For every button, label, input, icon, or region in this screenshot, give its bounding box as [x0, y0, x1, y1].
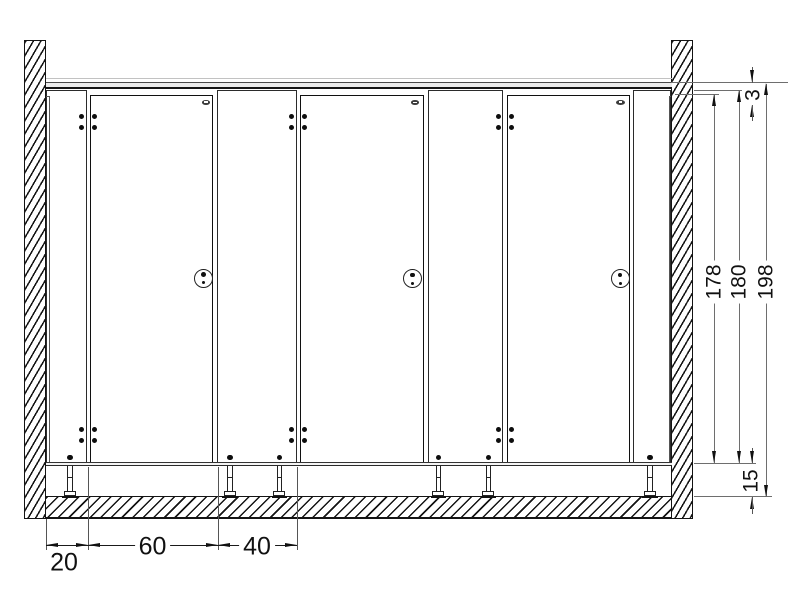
- foot-base: [481, 496, 497, 498]
- dim-label-20: 20: [50, 550, 78, 575]
- wall-panel-4: [633, 90, 671, 463]
- foot-adjuster: [67, 477, 72, 478]
- bottom-rail: [46, 462, 672, 466]
- hinge-icon: [92, 427, 97, 432]
- dim-180-arrow-top: [737, 90, 741, 102]
- foot-adjuster: [436, 477, 441, 478]
- right-wall-channel-tick: [669, 96, 672, 97]
- partition-panel-3: [428, 90, 504, 463]
- foot-bolt-icon: [67, 455, 72, 460]
- dim-label-15: 15: [740, 469, 761, 492]
- lock-dot-icon: [410, 273, 415, 278]
- foot-base: [431, 496, 447, 498]
- hinge-icon: [509, 114, 514, 119]
- foot-pedestal: [436, 466, 441, 491]
- hinge-icon: [92, 438, 97, 443]
- dim-3-shaft-bottom: [752, 105, 753, 121]
- hinge-icon: [79, 438, 84, 443]
- dim-15-shaft-bottom: [752, 497, 753, 514]
- hinge-icon: [79, 125, 84, 130]
- door-cap-slit-icon: [413, 102, 417, 103]
- dim-15-arrow-down: [750, 451, 754, 463]
- foot-bolt-icon: [227, 455, 232, 460]
- dim-178-arrow-top: [712, 94, 716, 106]
- door-lock-icon: [403, 269, 422, 288]
- left-wall-channel-tick: [46, 96, 50, 97]
- dim-label-60: 60: [135, 535, 171, 560]
- foot-base: [642, 496, 658, 498]
- dim-180-arrow-bottom: [737, 451, 741, 463]
- dim-40-arrow-left: [218, 543, 230, 547]
- dim-60-arrow-left: [88, 543, 100, 547]
- door-cap-slit-icon: [619, 101, 623, 102]
- hinge-icon: [302, 438, 307, 443]
- foot-bolt-icon: [647, 455, 652, 460]
- hinge-icon: [289, 114, 294, 119]
- partition-panel-2: [217, 90, 297, 463]
- lock-dot-icon: [619, 282, 622, 285]
- foot-base: [222, 496, 238, 498]
- hinge-icon: [509, 125, 514, 130]
- extension-line-panel-top: [694, 90, 742, 91]
- lock-dot-icon: [411, 282, 414, 285]
- hinge-icon: [289, 125, 294, 130]
- foot-pedestal: [647, 466, 652, 491]
- extension-line-lock-stile: [218, 467, 219, 550]
- wall-panel-1: [46, 90, 87, 463]
- door-cap-slit-icon: [204, 101, 208, 102]
- foot-adjuster: [277, 477, 282, 478]
- hinge-icon: [79, 427, 84, 432]
- dim-3-arrow-down: [750, 70, 754, 82]
- foot-base: [62, 496, 78, 498]
- hinge-icon: [302, 114, 307, 119]
- hinge-icon: [509, 438, 514, 443]
- foot-base: [272, 496, 288, 498]
- extension-line-floor-top: [694, 496, 772, 497]
- lock-dot-icon: [201, 272, 206, 277]
- foot-adjuster: [647, 477, 652, 478]
- dim-20-arrow-right: [76, 543, 88, 547]
- dim-label-198: 198: [756, 260, 777, 303]
- dim-178-arrow-bottom: [712, 451, 716, 463]
- hinge-icon: [92, 114, 97, 119]
- left-wall-channel: [49, 97, 50, 463]
- dim-label-178: 178: [704, 260, 725, 303]
- foot-adjuster: [227, 477, 232, 478]
- extension-line-rail-top: [671, 82, 788, 83]
- hinge-icon: [302, 125, 307, 130]
- right-wall-section: [671, 40, 693, 519]
- hinge-icon: [302, 427, 307, 432]
- foot-pedestal: [486, 466, 491, 491]
- foot-pedestal: [227, 466, 232, 491]
- hinge-icon: [289, 438, 294, 443]
- right-wall-channel: [669, 97, 670, 463]
- foot-pedestal: [67, 466, 72, 491]
- hinge-icon: [92, 125, 97, 130]
- foot-adjuster: [486, 477, 491, 478]
- hinge-icon: [79, 114, 84, 119]
- dim-20-arrow-left: [46, 543, 58, 547]
- dim-label-3: 3: [742, 89, 763, 101]
- dim-198-arrow-bottom: [764, 485, 768, 497]
- extension-line-hinge-stile: [88, 467, 89, 550]
- dim-label-180: 180: [729, 260, 750, 303]
- extension-line-panel-bottom: [694, 463, 756, 464]
- dim-198-arrow-top: [764, 83, 768, 95]
- dim-40-arrow-right: [285, 543, 297, 547]
- partition-elevation-drawing: 3 178 180 198 15 20 60 40: [0, 0, 801, 610]
- extension-line-hinge-stile-2: [297, 467, 298, 550]
- door-lock-icon: [611, 269, 630, 288]
- dim-label-40: 40: [239, 535, 275, 560]
- dim-60-arrow-right: [206, 543, 218, 547]
- left-wall-section: [24, 40, 46, 519]
- floor-section: [46, 496, 672, 519]
- hinge-icon: [289, 427, 294, 432]
- hinge-icon: [509, 427, 514, 432]
- foot-pedestal: [277, 466, 282, 491]
- headrail-top-edge: [46, 78, 672, 79]
- headrail: [46, 82, 672, 89]
